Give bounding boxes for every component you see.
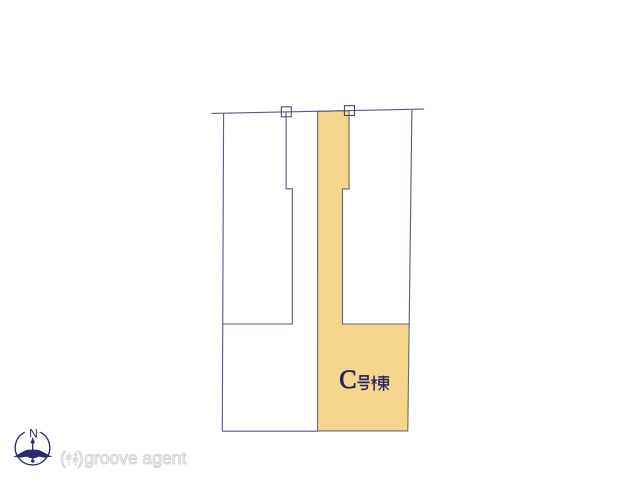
svg-text:C: C: [339, 365, 356, 394]
svg-text:): ): [78, 448, 84, 468]
svg-text:groove agent: groove agent: [84, 448, 186, 468]
svg-text:(: (: [60, 448, 66, 468]
svg-text:N: N: [29, 427, 38, 441]
